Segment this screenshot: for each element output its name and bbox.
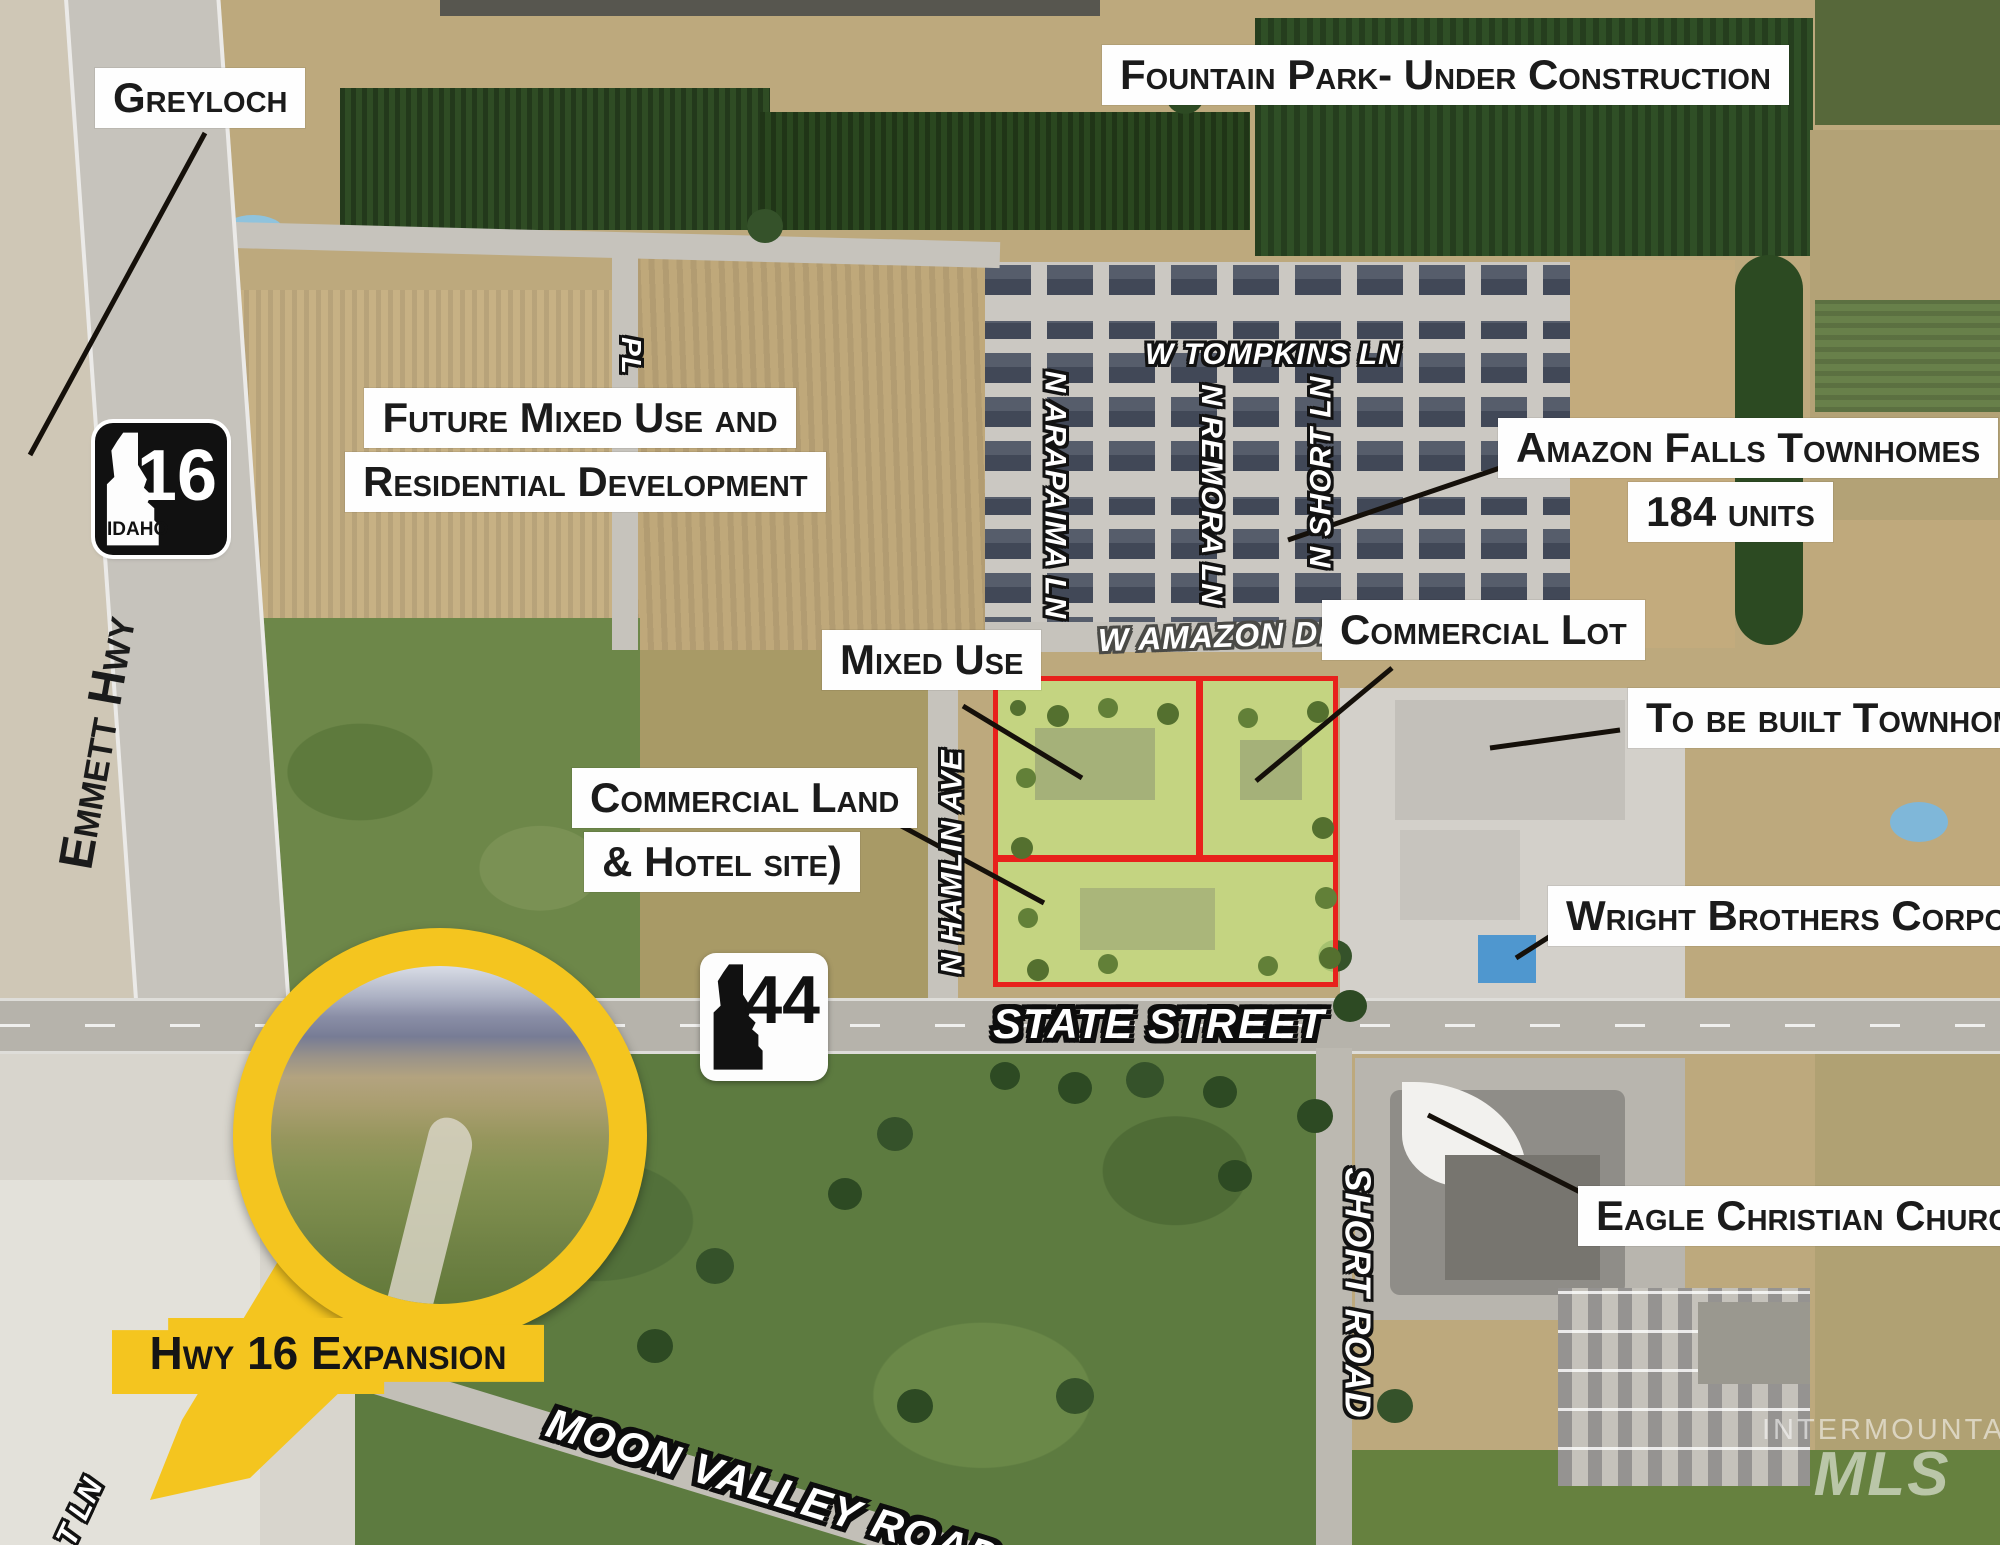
- highway-16-shield: 16 IDAHO: [95, 423, 227, 555]
- callout-fountain-park: Fountain Park- Under Construction: [1102, 45, 1789, 105]
- highway-44-shield: 44: [700, 953, 828, 1081]
- leader-commercial-lot: [1256, 668, 1392, 781]
- street-label-short-ln: N SHORT LN: [1304, 376, 1338, 569]
- street-label-arapaima: N ARAPAIMA LN: [1037, 371, 1071, 620]
- callout-amazon-line2: 184 units: [1628, 482, 1833, 542]
- highway-44-number: 44: [744, 961, 820, 1039]
- callout-amazon-falls: Amazon Falls Townhomes 184 units: [1498, 418, 1963, 546]
- street-label-remora: N REMORA LN: [1194, 384, 1228, 606]
- street-label-pl: PL: [615, 337, 647, 375]
- leader-to-be-built: [1490, 730, 1620, 748]
- highway-16-state-label: IDAHO: [107, 519, 168, 541]
- highway-16-number: 16: [137, 435, 217, 517]
- leader-lines: [0, 0, 2000, 1545]
- callout-amazon-line1: Amazon Falls Townhomes: [1498, 418, 1998, 478]
- callout-mixed-use: Mixed Use: [822, 630, 1041, 690]
- photo-highway: [380, 1114, 478, 1304]
- aerial-map: W TOMPKINS LN N ARAPAIMA LN N REMORA LN …: [0, 0, 2000, 1545]
- callout-greyloch: Greyloch: [95, 68, 305, 128]
- street-label-tompkins: W TOMPKINS LN: [1145, 338, 1401, 372]
- leader-eagle-church: [1428, 1115, 1588, 1196]
- callout-commercial-lot: Commercial Lot: [1322, 600, 1645, 660]
- callout-wright-brothers: Wright Brothers Corporate: [1548, 886, 2000, 946]
- street-label-short-road: SHORT ROAD: [1337, 1167, 1379, 1418]
- watermark-line2: MLS: [1762, 1439, 2000, 1510]
- hwy16-expansion-label: Hwy 16 Expansion: [112, 1326, 544, 1380]
- hwy16-expansion-photo: [271, 966, 609, 1304]
- street-label-hamlin: N HAMLIN AVE: [936, 749, 970, 974]
- callout-commercial-land-line1: Commercial Land: [572, 768, 917, 828]
- mls-watermark: INTERMOUNTAIN MLS: [1762, 1414, 2000, 1510]
- leader-mixed-use: [963, 706, 1082, 778]
- street-label-state-street: STATE STREET: [993, 1000, 1326, 1048]
- callout-future-line2: Residential Development: [345, 452, 826, 512]
- hwy16-expansion-pin: [233, 928, 647, 1342]
- leader-greyloch: [30, 133, 205, 455]
- callout-future-line1: Future Mixed Use and: [364, 388, 795, 448]
- callout-to-be-built: To be built Townhomes: [1628, 688, 2000, 748]
- callout-future-development: Future Mixed Use and Residential Develop…: [345, 388, 815, 516]
- callout-commercial-land-line2: & Hotel site): [584, 832, 860, 892]
- callout-eagle-church: Eagle Christian Church: [1578, 1186, 2000, 1246]
- callout-commercial-land: Commercial Land & Hotel site): [572, 768, 872, 896]
